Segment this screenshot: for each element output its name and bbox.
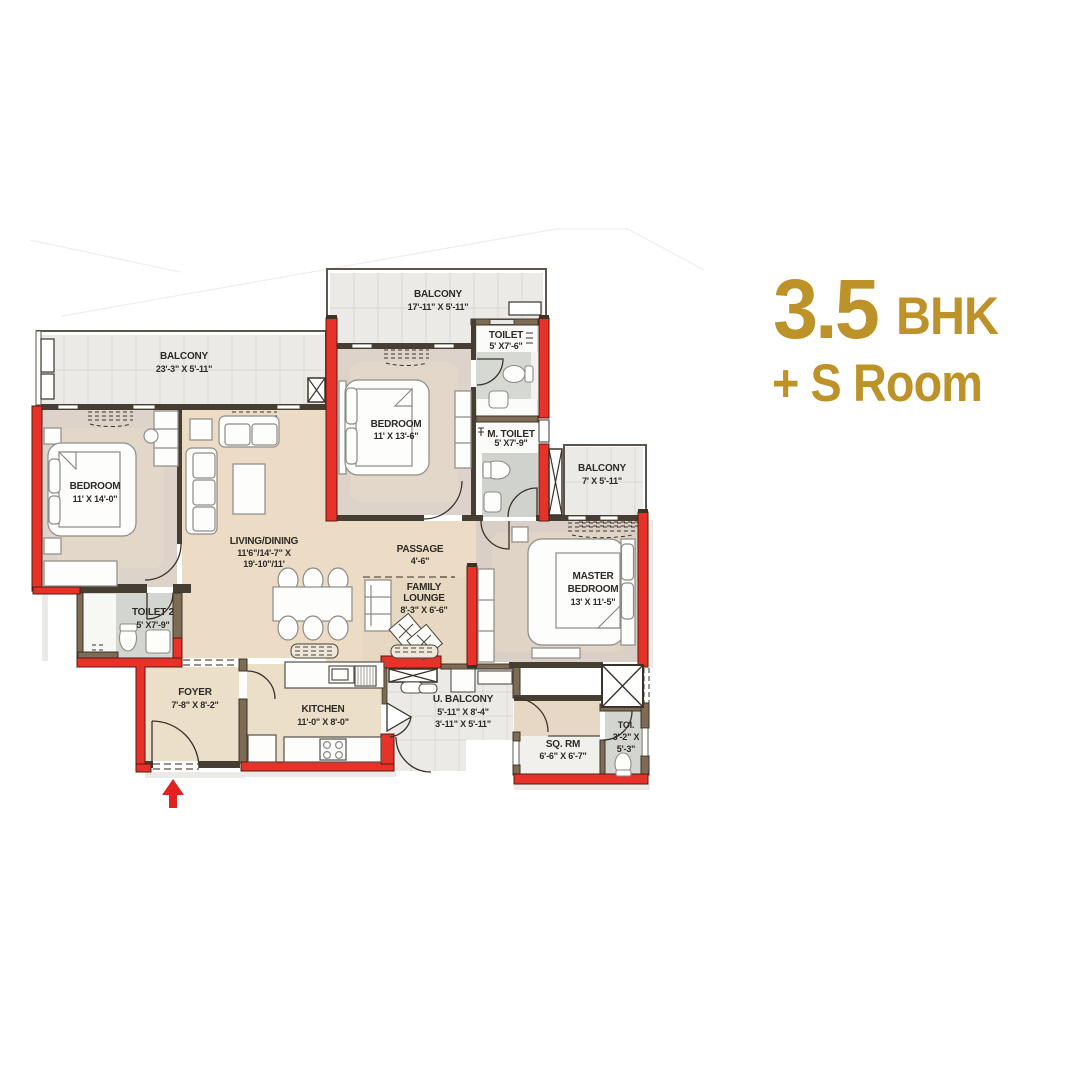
svg-text:7'-8" X 8'-2": 7'-8" X 8'-2" (171, 700, 218, 710)
svg-text:8'-3" X 6'-6": 8'-3" X 6'-6" (400, 605, 447, 615)
svg-text:23'-3" X 5'-11": 23'-3" X 5'-11" (156, 364, 212, 374)
svg-text:3'-11" X 5'-11": 3'-11" X 5'-11" (435, 719, 491, 729)
svg-text:11'-0" X 8'-0": 11'-0" X 8'-0" (297, 717, 349, 727)
svg-text:BEDROOM: BEDROOM (70, 481, 121, 492)
svg-text:BALCONY: BALCONY (578, 463, 627, 474)
svg-text:6'-6" X 6'-7": 6'-6" X 6'-7" (539, 751, 586, 761)
svg-text:11'6"/14'-7" X: 11'6"/14'-7" X (237, 548, 291, 558)
svg-text:SQ. RM: SQ. RM (546, 739, 580, 750)
svg-text:TOILET: TOILET (489, 330, 523, 341)
svg-text:4'-6": 4'-6" (411, 556, 429, 566)
svg-text:LOUNGE: LOUNGE (403, 593, 445, 604)
svg-text:KITCHEN: KITCHEN (301, 704, 344, 715)
svg-text:FAMILY: FAMILY (407, 582, 442, 593)
svg-text:BALCONY: BALCONY (414, 289, 463, 300)
svg-text:BEDROOM: BEDROOM (371, 419, 422, 430)
svg-text:BALCONY: BALCONY (160, 351, 209, 362)
svg-text:3'-2" X: 3'-2" X (613, 732, 640, 742)
svg-text:19'-10"/11': 19'-10"/11' (243, 559, 284, 569)
svg-text:FOYER: FOYER (178, 687, 212, 698)
svg-text:5' X7'-9": 5' X7'-9" (136, 620, 169, 630)
svg-text:11' X 14'-0": 11' X 14'-0" (73, 494, 118, 504)
svg-text:5' X7'-6": 5' X7'-6" (489, 341, 522, 351)
svg-text:5'-11" X 8'-4": 5'-11" X 8'-4" (437, 707, 489, 717)
svg-text:+ S Room: + S Room (772, 354, 982, 413)
svg-text:LIVING/DINING: LIVING/DINING (230, 536, 299, 547)
svg-text:17'-11" X 5'-11": 17'-11" X 5'-11" (408, 302, 469, 312)
svg-text:3.5: 3.5 (773, 262, 878, 356)
svg-text:5' X7'-9": 5' X7'-9" (494, 438, 527, 448)
svg-text:TOILET 2: TOILET 2 (132, 607, 175, 618)
svg-text:TOI.: TOI. (618, 720, 635, 730)
svg-text:BEDROOM: BEDROOM (568, 584, 619, 595)
svg-text:13' X 11'-5": 13' X 11'-5" (571, 597, 616, 607)
svg-text:5'-3": 5'-3" (617, 744, 635, 754)
svg-text:BHK: BHK (896, 287, 999, 346)
svg-text:PASSAGE: PASSAGE (397, 544, 444, 555)
svg-text:11' X 13'-6": 11' X 13'-6" (374, 431, 419, 441)
svg-text:7' X 5'-11": 7' X 5'-11" (582, 476, 622, 486)
svg-text:U. BALCONY: U. BALCONY (433, 694, 494, 705)
svg-text:MASTER: MASTER (572, 571, 614, 582)
